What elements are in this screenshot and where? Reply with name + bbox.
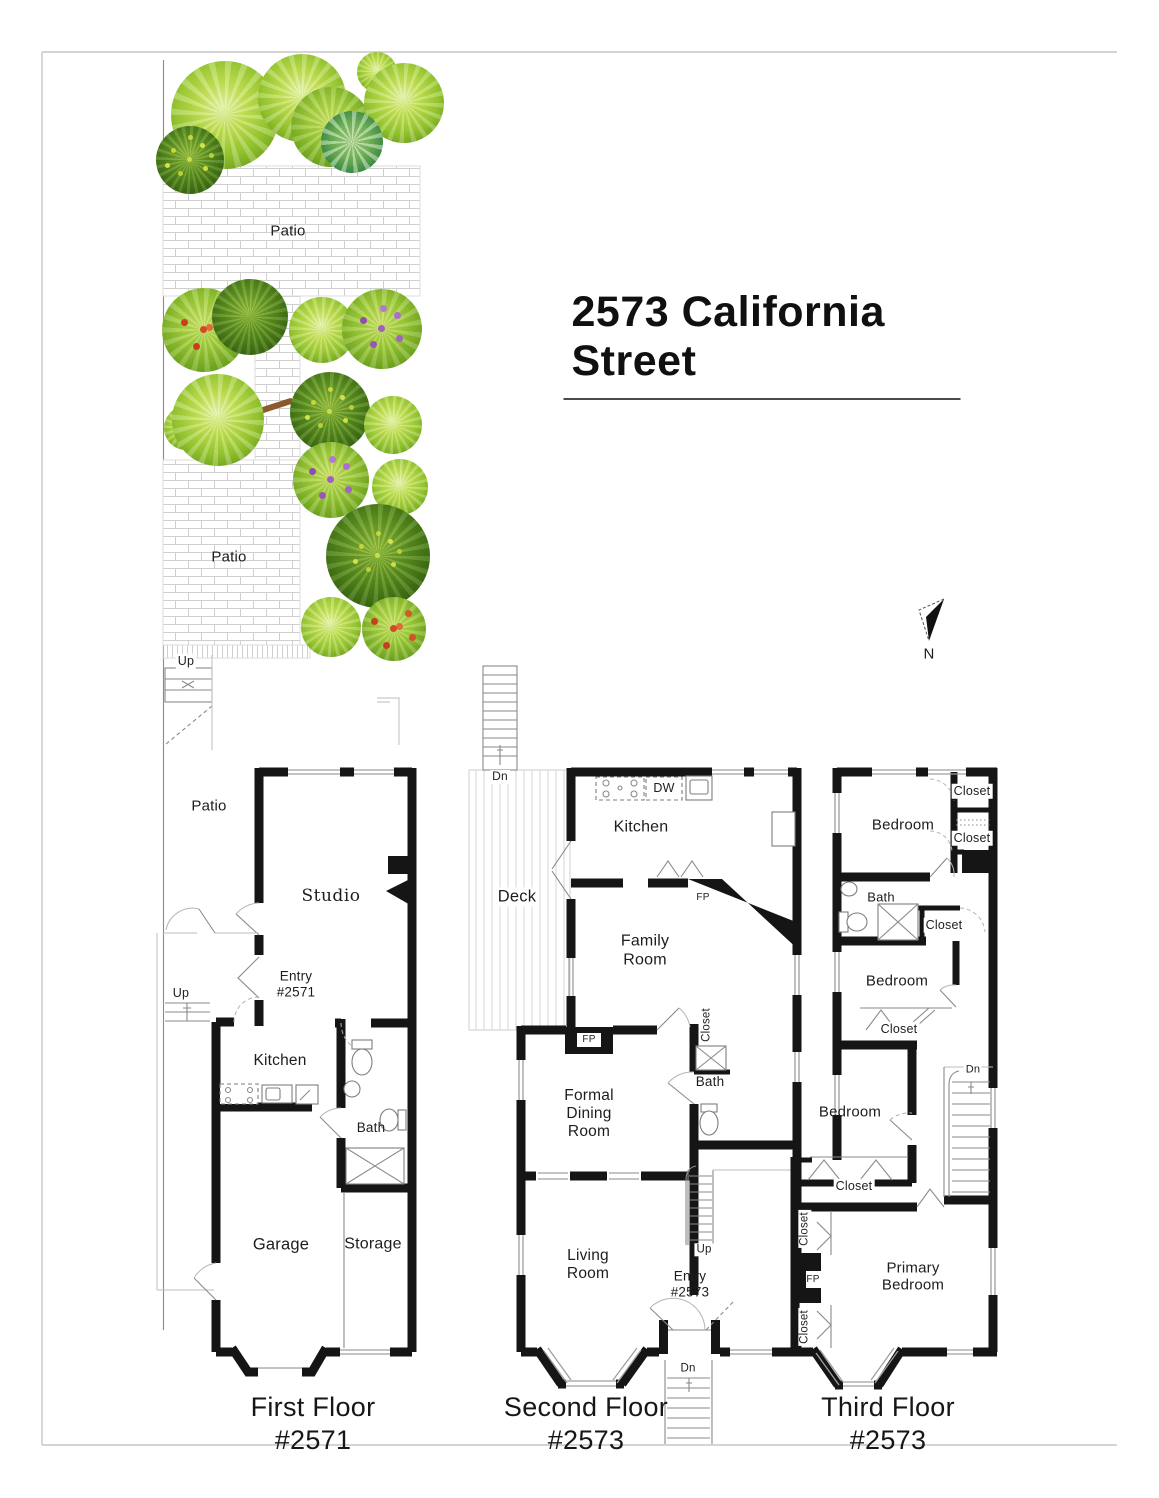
flowering-bush-icon <box>342 289 422 369</box>
room-label-living-room: Living Room <box>556 1247 620 1283</box>
caption-unit: #2573 <box>504 1424 668 1457</box>
dn-bottom-label: Dn <box>678 1362 697 1375</box>
third-floor-caption: Third Floor #2573 <box>821 1391 955 1457</box>
room-label-bedroom-mid: Bedroom <box>866 972 928 989</box>
room-label-bedroom-rear: Bedroom <box>872 816 934 833</box>
bush-icon <box>326 504 430 608</box>
palm-plant-icon <box>321 111 383 173</box>
caption-text: Second Floor <box>504 1391 668 1424</box>
page-title: 2573 California Street <box>564 288 961 400</box>
floor-plan-second <box>469 666 801 1444</box>
closet-label-1: Closet <box>952 784 993 799</box>
second-floor-caption: Second Floor #2573 <box>504 1391 668 1457</box>
caption-text: Third Floor <box>821 1391 955 1424</box>
room-label-studio: Studio <box>302 887 361 907</box>
fireplace-label-primary: FP <box>806 1274 819 1286</box>
flowering-bush-icon <box>293 442 369 518</box>
dishwasher-label: DW <box>653 781 674 796</box>
room-label-patio: Patio <box>191 797 226 814</box>
first-floor-fixtures <box>220 1040 406 1348</box>
room-label-kitchen-2: Kitchen <box>614 819 669 838</box>
deck-stairs <box>483 666 517 770</box>
closet-label-6: Closet <box>798 1210 811 1248</box>
closet-label-5: Closet <box>834 1179 875 1194</box>
fireplace-label-kitchen: FP <box>694 892 711 904</box>
room-label-kitchen-1: Kitchen <box>253 1052 306 1070</box>
room-label-garage: Garage <box>253 1235 309 1254</box>
closet-label-3: Closet <box>924 918 965 933</box>
room-label-bath-1: Bath <box>357 1120 386 1136</box>
entry-unit-number: #2571 <box>277 984 316 1000</box>
up-mid-label: Up <box>171 986 191 1001</box>
room-label-bath-2: Bath <box>696 1074 725 1090</box>
entry-unit-number: #2573 <box>671 1284 710 1300</box>
entry-label-2573: Entry #2573 <box>671 1268 710 1299</box>
patio-lower-label: Patio <box>211 548 246 565</box>
room-label-deck: Deck <box>495 887 539 906</box>
caption-text: First Floor <box>251 1391 376 1424</box>
bush-icon <box>212 279 288 355</box>
bush-icon <box>364 396 422 454</box>
up-label-2f: Up <box>694 1243 713 1256</box>
room-label-family-room: Family Room <box>604 932 686 969</box>
floor-plan-sheet: 2573 California Street N Patio Patio Up … <box>0 0 1159 1498</box>
third-floor-stairs <box>944 1067 993 1197</box>
room-label-bedroom-front: Bedroom <box>819 1103 881 1120</box>
bush-icon <box>290 372 370 452</box>
bush-icon <box>301 597 361 657</box>
room-label-bath-3: Bath <box>867 889 895 904</box>
entry-label-text: Entry <box>671 1268 710 1284</box>
room-label-storage: Storage <box>344 1236 401 1255</box>
closet-label-7: Closet <box>798 1308 811 1346</box>
bush-icon <box>156 126 224 194</box>
fireplace-label-dining: FP <box>582 1034 595 1046</box>
entry-label-text: Entry <box>277 968 316 984</box>
up-top-label: Up <box>176 654 196 669</box>
closet-label-2: Closet <box>952 831 993 846</box>
room-label-primary-bedroom: Primary Bedroom <box>863 1260 963 1295</box>
north-label: N <box>923 645 934 662</box>
floor-plan-first <box>163 655 412 1372</box>
flowering-bush-icon <box>362 597 426 661</box>
dn-top-label: Dn <box>490 770 510 784</box>
patio-upper-label: Patio <box>270 222 305 239</box>
room-label-formal-dining: Formal Dining Room <box>553 1087 625 1141</box>
entry-label-2571: Entry #2571 <box>277 968 316 999</box>
closet-label-4: Closet <box>879 1022 920 1037</box>
first-floor-exterior-stairs <box>165 655 399 1021</box>
dn-label-3f: Dn <box>964 1064 982 1077</box>
first-floor-walls <box>216 768 412 1372</box>
closet-label-2f: Closet <box>700 1008 713 1042</box>
first-floor-caption: First Floor #2571 <box>251 1391 376 1457</box>
second-floor-stairs <box>665 1166 797 1444</box>
north-arrow-icon <box>919 599 944 641</box>
tree-icon <box>172 374 264 466</box>
caption-unit: #2571 <box>251 1424 376 1457</box>
caption-unit: #2573 <box>821 1424 955 1457</box>
